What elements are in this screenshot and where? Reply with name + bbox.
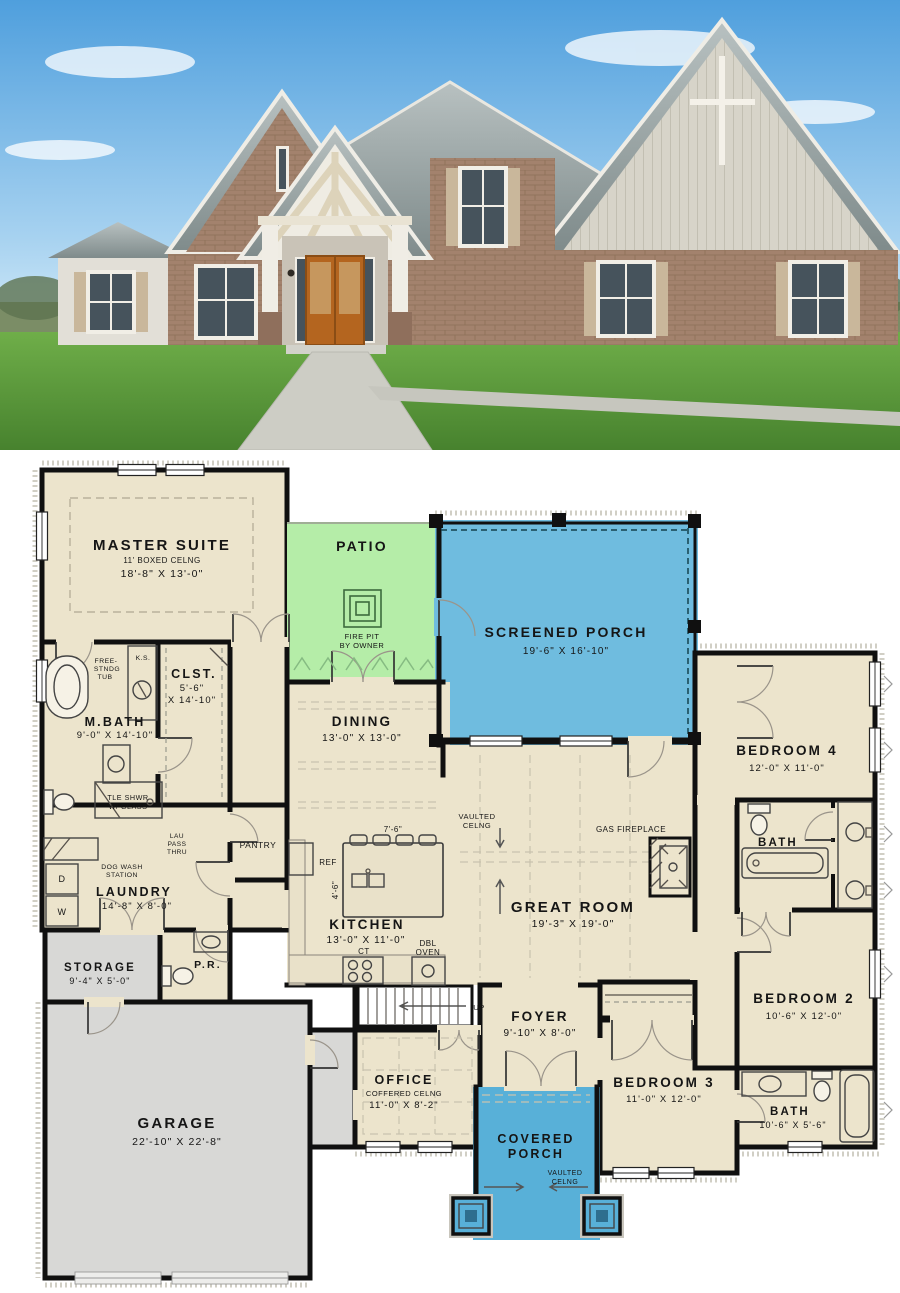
label-office-ceil: COFFERED CELNG bbox=[366, 1089, 442, 1098]
label-pr: P.R. bbox=[194, 959, 222, 971]
label-bath4: BATH bbox=[758, 837, 798, 849]
label-dryer: D bbox=[59, 874, 66, 884]
label-ct: CT bbox=[358, 947, 370, 956]
label-kitchen-dims: 13'-0" X 11'-0" bbox=[327, 935, 406, 946]
label-cporch-1: COVERED bbox=[497, 1132, 574, 1146]
bath2-toilet bbox=[812, 1071, 832, 1101]
label-bed4-name: BEDROOM 4 bbox=[736, 743, 838, 758]
label-foyer-dims: 9'-10" X 8'-0" bbox=[503, 1028, 576, 1039]
label-shower-1: TLE SHWR bbox=[107, 793, 148, 802]
label-garage-name: GARAGE bbox=[137, 1115, 216, 1132]
label-laupass-1: LAU bbox=[170, 833, 184, 840]
label-bed2-dims: 10'-6" X 12'-0" bbox=[766, 1011, 843, 1022]
porch-beam bbox=[258, 216, 412, 225]
window bbox=[788, 1142, 822, 1153]
label-dbloven-1: DBL bbox=[419, 939, 436, 948]
porch-column bbox=[580, 1194, 624, 1238]
label-clst-d1: 5'-6" bbox=[180, 683, 204, 694]
label-storage-dims: 9'-4" X 5'-0" bbox=[69, 976, 130, 986]
label-bath2-name: BATH bbox=[770, 1106, 810, 1118]
label-cporch-vault-1: VAULTED bbox=[548, 1170, 583, 1177]
window bbox=[870, 950, 881, 998]
window bbox=[613, 1168, 649, 1179]
window bbox=[166, 465, 204, 476]
left-front-window bbox=[196, 266, 256, 338]
label-dining-name: DINING bbox=[332, 714, 392, 729]
door-sidelight-left bbox=[296, 258, 306, 342]
label-cporch-2: PORCH bbox=[508, 1147, 564, 1161]
label-shower-2: W/ GLASS bbox=[109, 802, 148, 811]
label-freetub-1: FREE- bbox=[95, 658, 118, 665]
label-freetub-3: TUB bbox=[97, 674, 112, 681]
porch-lantern bbox=[288, 270, 295, 277]
label-ref: REF bbox=[319, 858, 337, 867]
room-garage-nook bbox=[310, 1030, 358, 1147]
label-bath2-dims: 10'-6" X 5'-6" bbox=[759, 1120, 826, 1130]
label-great-vault-2: CELNG bbox=[463, 821, 491, 830]
label-clst-d2: X 14'-10" bbox=[168, 695, 216, 706]
label-bed2-name: BEDROOM 2 bbox=[753, 991, 855, 1006]
label-clst-name: CLST. bbox=[171, 667, 217, 681]
label-bed3-name: BEDROOM 3 bbox=[613, 1075, 715, 1090]
left-wing-window bbox=[74, 272, 148, 332]
room-bed2 bbox=[737, 910, 875, 1068]
window bbox=[560, 736, 612, 746]
label-island-width: 7'-6" bbox=[384, 825, 402, 834]
label-master-name: MASTER SUITE bbox=[93, 537, 231, 554]
label-dining-dims: 13'-0" X 13'-0" bbox=[322, 733, 402, 744]
porch-column bbox=[449, 1194, 493, 1238]
kitchen-island bbox=[343, 835, 443, 917]
label-ks: K.S. bbox=[136, 655, 151, 662]
mid-tall-window bbox=[446, 168, 520, 246]
label-sporch-name: SCREENED PORCH bbox=[484, 624, 647, 640]
gas-fireplace bbox=[650, 838, 690, 896]
label-foyer-name: FOYER bbox=[511, 1009, 569, 1024]
floor-plan-svg: MASTER SUITE 11' BOXED CELNG 18'-8" X 13… bbox=[0, 450, 900, 1293]
house-photo bbox=[0, 0, 900, 450]
label-washer: W bbox=[58, 907, 67, 917]
room-hall bbox=[230, 642, 287, 930]
attic-slit-glass bbox=[279, 149, 286, 189]
label-great-name: GREAT ROOM bbox=[511, 899, 635, 916]
right-window-1 bbox=[584, 262, 668, 336]
door-sidelight-right bbox=[364, 258, 374, 342]
label-sporch-dims: 19'-6" X 16'-10" bbox=[523, 646, 609, 657]
label-laundry-dims: 14'-8" X 8'-0" bbox=[102, 901, 172, 912]
column-brick-base-right bbox=[388, 312, 412, 345]
label-laupass-2: PASS bbox=[168, 841, 187, 848]
label-island-depth: 4'-6" bbox=[331, 881, 340, 899]
window bbox=[366, 1142, 400, 1153]
label-up: UP bbox=[473, 1003, 484, 1012]
label-freetub-2: STNDG bbox=[94, 666, 120, 673]
label-bed4-dims: 12'-0" X 11'-0" bbox=[749, 763, 825, 774]
label-pantry: PANTRY bbox=[240, 840, 277, 850]
garage-door bbox=[75, 1272, 161, 1284]
label-kitchen-name: KITCHEN bbox=[329, 917, 404, 932]
column-brick-base-left bbox=[258, 312, 282, 345]
window bbox=[870, 662, 881, 706]
freestanding-tub bbox=[46, 656, 88, 718]
label-bed3-dims: 11'-0" X 12'-0" bbox=[626, 1094, 702, 1105]
pr-toilet bbox=[162, 966, 193, 986]
right-window-2 bbox=[776, 262, 860, 336]
floor-plan: MASTER SUITE 11' BOXED CELNG 18'-8" X 13… bbox=[0, 450, 900, 1293]
window bbox=[658, 1168, 694, 1179]
window bbox=[118, 465, 156, 476]
label-laundry-name: LAUNDRY bbox=[96, 885, 172, 899]
label-mbath-dims: 9'-0" X 14'-10" bbox=[77, 730, 154, 741]
label-gas-fireplace: GAS FIREPLACE bbox=[596, 825, 666, 834]
label-firepit-1: FIRE PIT bbox=[345, 632, 380, 641]
label-office-dims: 11'-0" X 8'-2" bbox=[369, 1100, 438, 1111]
room-foyer-closet bbox=[600, 982, 697, 1018]
label-great-vault-1: VAULTED bbox=[459, 812, 496, 821]
label-master-dims: 18'-8" X 13'-0" bbox=[121, 568, 204, 580]
room-bed4 bbox=[695, 653, 875, 800]
label-office-name: OFFICE bbox=[374, 1073, 433, 1087]
label-master-ceil: 11' BOXED CELNG bbox=[123, 556, 200, 565]
house-photo-svg bbox=[0, 0, 900, 450]
window bbox=[870, 728, 881, 772]
label-firepit-2: BY OWNER bbox=[340, 641, 385, 650]
window bbox=[470, 736, 522, 746]
label-dogwash-1: DOG WASH bbox=[101, 864, 143, 871]
label-storage-name: STORAGE bbox=[64, 962, 136, 974]
garage-door bbox=[172, 1272, 288, 1284]
label-garage-dims: 22'-10" X 22'-8" bbox=[132, 1136, 222, 1148]
label-dbloven-2: OVEN bbox=[416, 948, 441, 957]
label-great-dims: 19'-3" X 19'-0" bbox=[532, 918, 615, 930]
label-patio: PATIO bbox=[336, 538, 388, 554]
window bbox=[37, 512, 48, 560]
label-dogwash-2: STATION bbox=[106, 872, 138, 879]
label-laupass-3: THRU bbox=[167, 849, 187, 856]
label-mbath-name: M.BATH bbox=[85, 715, 146, 729]
window bbox=[418, 1142, 452, 1153]
label-cporch-vault-2: CELNG bbox=[552, 1179, 579, 1186]
